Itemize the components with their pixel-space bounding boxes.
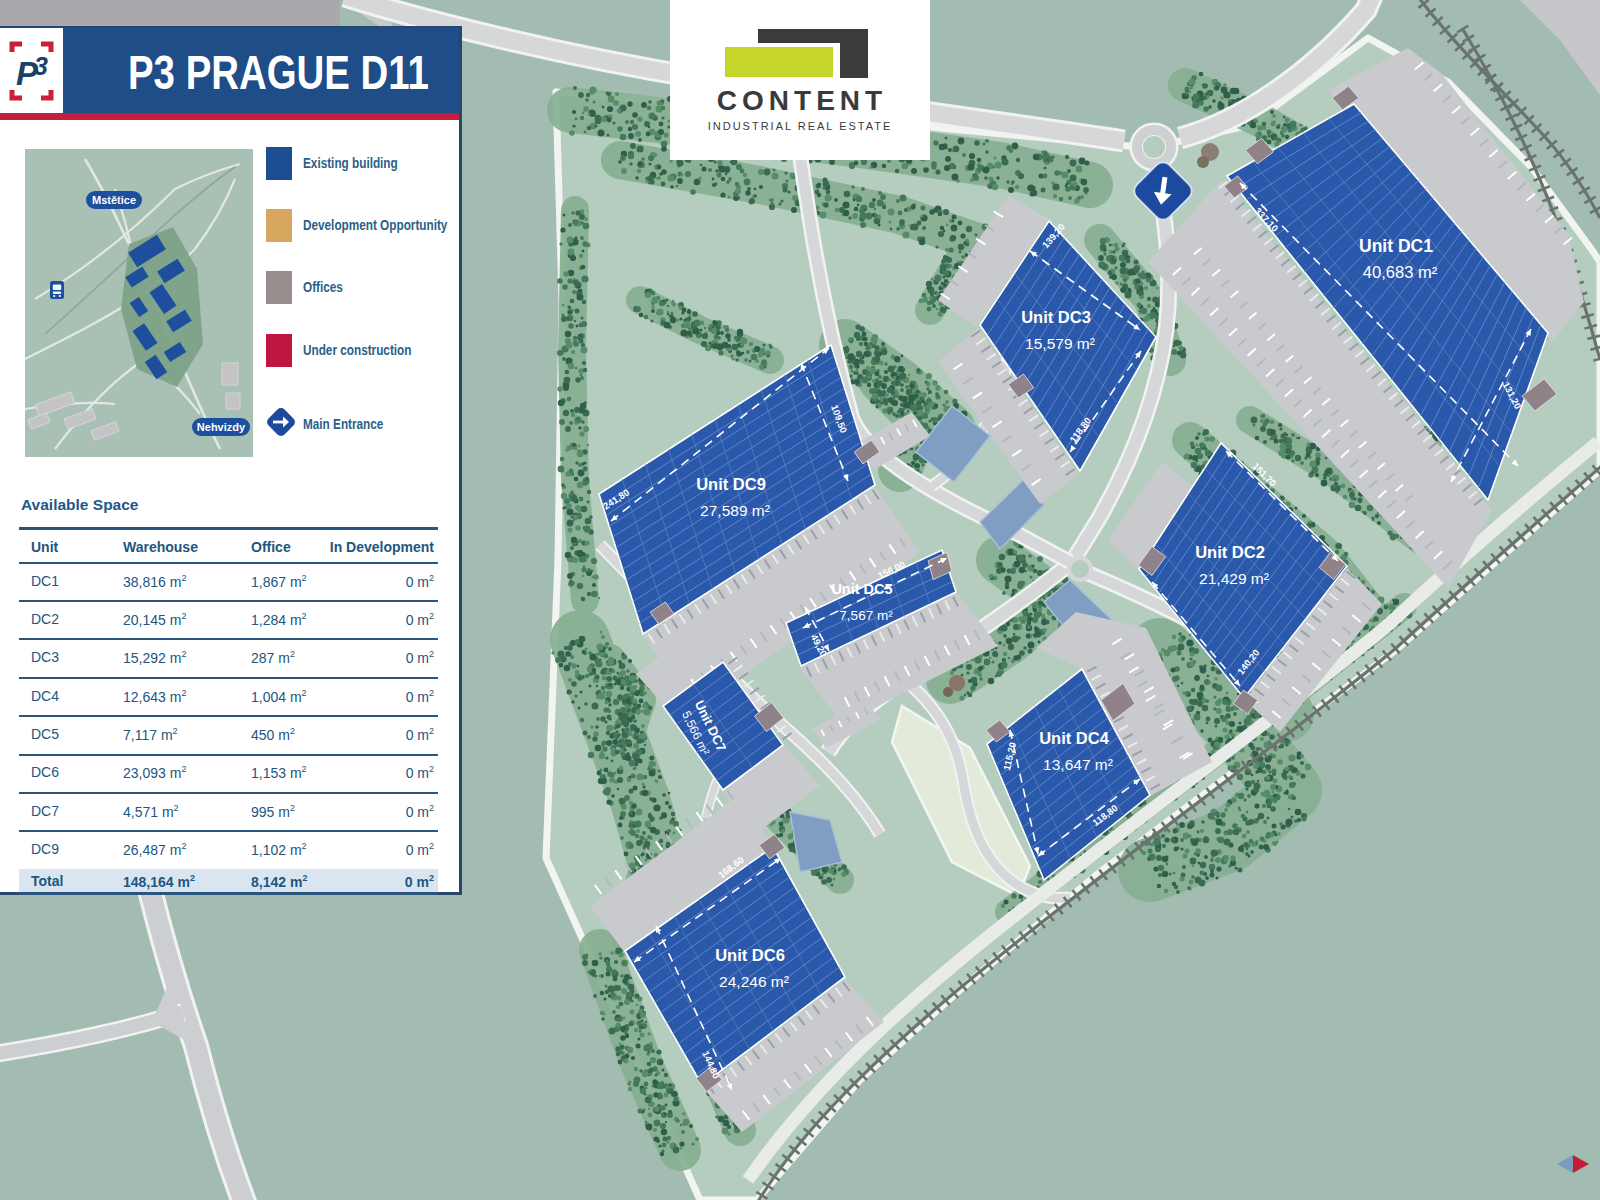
svg-text:40,683 m²: 40,683 m² xyxy=(1363,263,1438,281)
svg-text:Unit DC4: Unit DC4 xyxy=(1039,729,1109,747)
svg-text:21,429 m²: 21,429 m² xyxy=(1199,570,1269,587)
svg-text:Nehvizdy: Nehvizdy xyxy=(197,421,246,433)
svg-text:Mstětice: Mstětice xyxy=(92,194,136,206)
svg-text:3: 3 xyxy=(34,52,48,80)
svg-text:7,567 m²: 7,567 m² xyxy=(839,608,893,623)
svg-text:Unit DC6: Unit DC6 xyxy=(715,946,785,964)
svg-text:INDUSTRIAL REAL ESTATE: INDUSTRIAL REAL ESTATE xyxy=(708,120,893,132)
svg-text:Unit DC5: Unit DC5 xyxy=(831,581,892,597)
svg-text:Unit DC9: Unit DC9 xyxy=(696,475,766,493)
svg-text:24,246 m²: 24,246 m² xyxy=(719,973,789,990)
svg-text:Unit DC2: Unit DC2 xyxy=(1195,543,1265,561)
svg-text:Unit DC1: Unit DC1 xyxy=(1359,236,1433,256)
svg-text:15,579 m²: 15,579 m² xyxy=(1025,335,1095,352)
svg-text:27,589 m²: 27,589 m² xyxy=(700,502,770,519)
svg-text:Unit DC3: Unit DC3 xyxy=(1021,308,1091,326)
svg-text:13,647 m²: 13,647 m² xyxy=(1043,756,1113,773)
svg-text:CONTENT: CONTENT xyxy=(717,85,887,116)
